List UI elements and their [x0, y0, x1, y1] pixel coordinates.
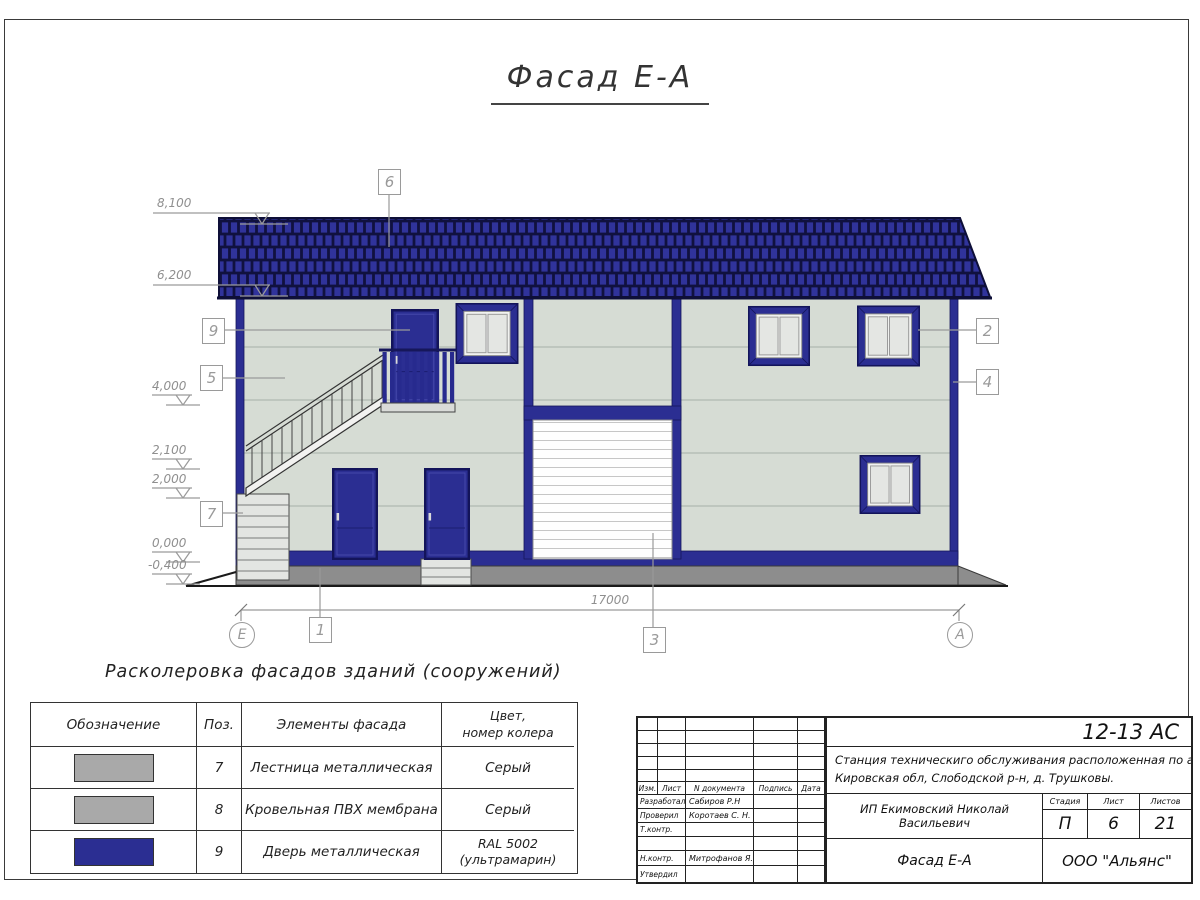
plinth	[236, 566, 958, 585]
rev-cell	[798, 770, 825, 782]
legend-swatch-cell	[31, 789, 197, 831]
window-upper-mid	[749, 307, 809, 366]
stage-value: П	[1042, 810, 1087, 839]
legend-swatch-cell	[31, 831, 197, 873]
role-name: Митрофанов Я. А.	[686, 851, 754, 866]
rev-cell	[658, 770, 686, 782]
legend-pos: 8	[197, 789, 242, 831]
callout-plinth: 1	[309, 617, 332, 643]
date-cell	[798, 809, 825, 823]
rev-cell	[638, 718, 658, 731]
date-cell	[798, 823, 825, 837]
project-description: Станция техническиго обслуживания распол…	[827, 747, 1191, 794]
col-izm: Изм.	[638, 782, 658, 795]
landing-guardrail	[381, 352, 455, 403]
role-name: Коротаев С. Н.	[686, 809, 754, 823]
rev-cell	[686, 770, 754, 782]
elevation-label: 8,100	[157, 196, 191, 210]
dimension-total-label: 17000	[570, 593, 650, 607]
drawing-name: Фасад Е-А	[827, 839, 1042, 882]
sign-cell	[754, 866, 798, 882]
elevation-label: -0,400	[148, 558, 187, 572]
col-doc: N документа	[686, 782, 754, 795]
window-lower-right	[860, 456, 919, 513]
rev-cell	[754, 757, 798, 770]
elevation-label: 6,200	[157, 268, 191, 282]
rev-cell	[638, 770, 658, 782]
callout-stairs: 7	[200, 501, 223, 527]
role-name: Сабиров Р.Н	[686, 795, 754, 809]
legend-element: Лестница металлическая	[242, 747, 442, 789]
landing-slab	[381, 403, 455, 412]
rev-cell	[686, 744, 754, 757]
corner-trim-right	[950, 297, 958, 559]
callout-garage: 3	[643, 627, 666, 653]
gray-swatch	[74, 796, 154, 824]
rev-cell	[754, 731, 798, 744]
landing	[379, 350, 457, 412]
plinth-flare	[958, 566, 1006, 585]
rev-cell	[638, 757, 658, 770]
rev-cell	[658, 744, 686, 757]
role-label: Проверил	[638, 809, 686, 823]
legend-color: Серый	[442, 747, 574, 789]
date-cell	[798, 851, 825, 866]
rev-cell	[658, 757, 686, 770]
list-label: Лист	[1087, 794, 1139, 810]
dimension-line	[241, 610, 959, 621]
window-upper-left	[456, 304, 517, 363]
legend-pos: 7	[197, 747, 242, 789]
entry-steps	[421, 559, 471, 585]
gray-swatch	[74, 754, 154, 782]
title-block-signatures: Изм. Лист N документа Подпись Дата Разра…	[638, 718, 827, 882]
garage-frame-left	[524, 297, 533, 559]
col-date: Дата	[798, 782, 825, 795]
legend-color: Серый	[442, 789, 574, 831]
rev-cell	[754, 718, 798, 731]
role-name	[686, 823, 754, 837]
sign-cell	[754, 837, 798, 851]
garage-header	[524, 406, 681, 420]
door-ground-left	[333, 469, 377, 559]
window-upper-right	[858, 306, 919, 365]
col-sign: Подпись	[754, 782, 798, 795]
legend-color: RAL 5002 (ультрамарин)	[442, 831, 574, 873]
doc-number: 12-13 АС	[827, 718, 1191, 747]
door-ground-right	[425, 469, 469, 559]
sign-cell	[754, 851, 798, 866]
garage-roller-panel	[533, 420, 672, 559]
elevation-label: 2,000	[152, 472, 186, 486]
rev-cell	[798, 757, 825, 770]
building	[186, 218, 1008, 586]
sign-cell	[754, 823, 798, 837]
legend-heading: Расколеровка фасадов зданий (сооружений)	[105, 662, 562, 682]
rev-cell	[686, 731, 754, 744]
stage-label: Стадия	[1042, 794, 1087, 810]
axis-marker-left: Е	[229, 622, 255, 648]
rev-cell	[754, 770, 798, 782]
elevation-label: 2,100	[152, 443, 186, 457]
rev-cell	[658, 731, 686, 744]
role-label: Разработал	[638, 795, 686, 809]
rev-cell	[798, 718, 825, 731]
rev-cell	[658, 718, 686, 731]
roof	[217, 218, 992, 298]
role-name	[686, 866, 754, 882]
legend-swatch-cell	[31, 747, 197, 789]
listov-label: Листов	[1139, 794, 1191, 810]
rev-cell	[686, 757, 754, 770]
legend-header-pos: Поз.	[197, 703, 242, 747]
listov-value: 21	[1139, 810, 1191, 839]
rev-cell	[754, 744, 798, 757]
callout-wall: 5	[200, 365, 223, 391]
role-label: Н.контр.	[638, 851, 686, 866]
date-cell	[798, 837, 825, 851]
role-name	[686, 837, 754, 851]
role-label: Т.контр.	[638, 823, 686, 837]
legend-pos: 9	[197, 831, 242, 873]
legend-table: Обозначение Поз. Элементы фасада Цвет, н…	[30, 702, 578, 874]
rev-cell	[638, 731, 658, 744]
rev-cell	[798, 731, 825, 744]
legend-header-designation: Обозначение	[31, 703, 197, 747]
callout-roof: 6	[378, 169, 401, 195]
elevation-label: 4,000	[152, 379, 186, 393]
callout-window: 2	[976, 318, 999, 344]
title-block: Изм. Лист N документа Подпись Дата Разра…	[636, 716, 1193, 884]
role-label	[638, 837, 686, 851]
legend-element: Дверь металлическая	[242, 831, 442, 873]
sign-cell	[754, 795, 798, 809]
date-cell	[798, 795, 825, 809]
sign-cell	[754, 809, 798, 823]
list-value: 6	[1087, 810, 1139, 839]
rev-cell	[686, 718, 754, 731]
col-list: Лист	[658, 782, 686, 795]
rev-cell	[798, 744, 825, 757]
garage-frame-right	[672, 297, 681, 559]
axis-marker-right: А	[947, 622, 973, 648]
legend-header-elements: Элементы фасада	[242, 703, 442, 747]
company-name: ООО "Альянс"	[1042, 839, 1191, 882]
legend-header-color: Цвет, номер колера	[442, 703, 574, 747]
role-label: Утвердил	[638, 866, 686, 882]
callout-corner: 4	[976, 369, 999, 395]
date-cell	[798, 866, 825, 882]
client-name: ИП Екимовский Николай Васильевич	[827, 794, 1042, 839]
blue-swatch	[74, 838, 154, 866]
elevation-label: 0,000	[152, 536, 186, 550]
callout-upper-door: 9	[202, 318, 225, 344]
rev-cell	[638, 744, 658, 757]
stair-steps-block	[237, 494, 289, 580]
legend-element: Кровельная ПВХ мембрана	[242, 789, 442, 831]
